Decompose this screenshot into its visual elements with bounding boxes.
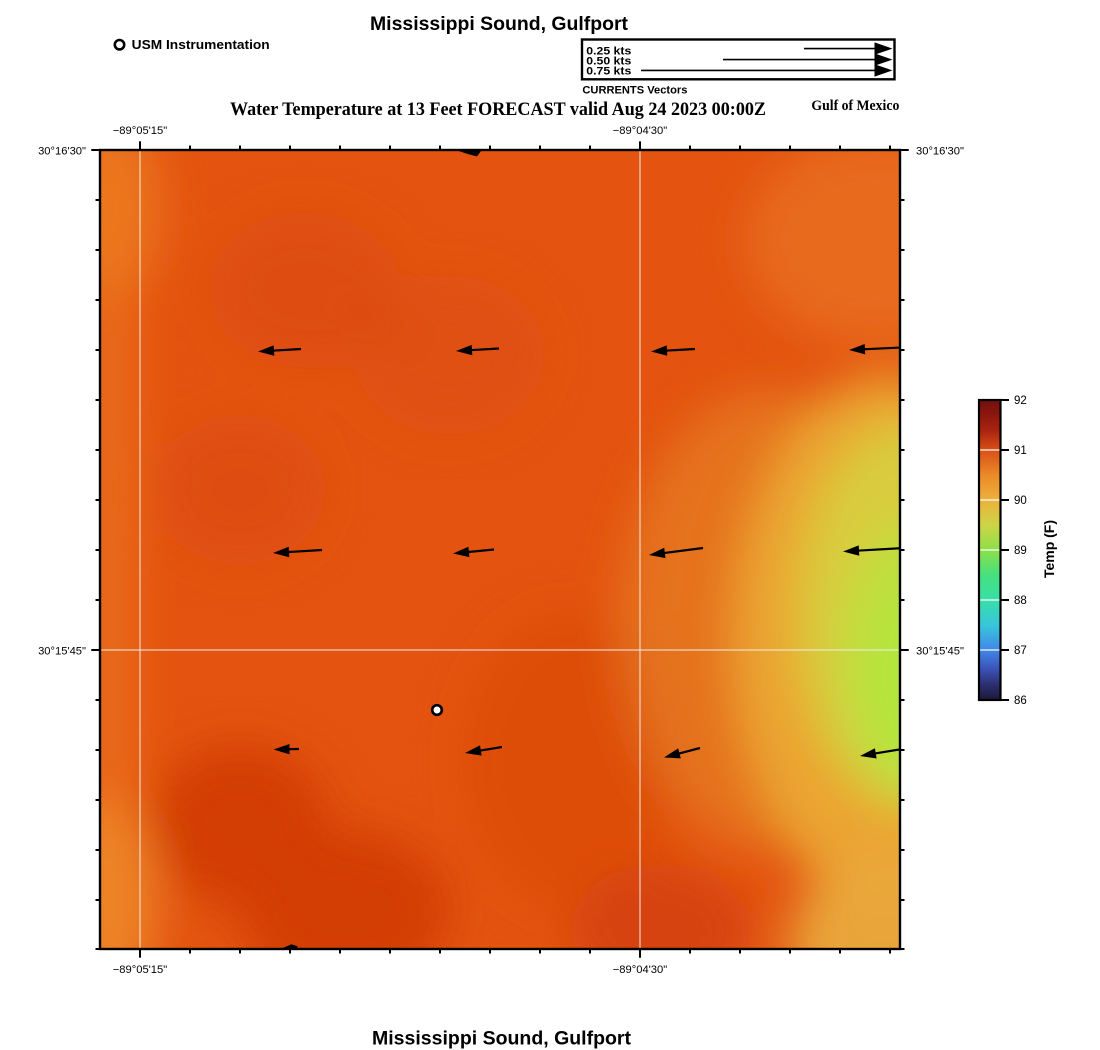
svg-text:30°16'30": 30°16'30" — [38, 145, 86, 157]
svg-text:91: 91 — [1014, 445, 1027, 457]
svg-text:90: 90 — [1014, 495, 1027, 507]
svg-text:86: 86 — [1014, 695, 1027, 707]
svg-text:30°15'45": 30°15'45" — [38, 645, 86, 657]
svg-text:−89°04'30": −89°04'30" — [613, 125, 667, 137]
svg-text:89: 89 — [1014, 545, 1027, 557]
svg-text:Water Temperature at 13 Feet F: Water Temperature at 13 Feet FORECAST va… — [230, 100, 766, 120]
svg-text:92: 92 — [1014, 395, 1027, 407]
svg-text:30°15'45": 30°15'45" — [916, 645, 964, 657]
svg-text:Mississippi Sound, Gulfport: Mississippi Sound, Gulfport — [370, 13, 629, 35]
svg-text:CURRENTS Vectors: CURRENTS Vectors — [582, 85, 687, 97]
svg-text:Mississippi Sound, Gulfport: Mississippi Sound, Gulfport — [372, 1028, 632, 1050]
svg-text:30°16'30": 30°16'30" — [916, 145, 964, 157]
svg-text:−89°05'15": −89°05'15" — [113, 964, 167, 976]
svg-text:87: 87 — [1014, 645, 1027, 657]
svg-text:−89°05'15": −89°05'15" — [113, 125, 167, 137]
svg-text:USM Instrumentation: USM Instrumentation — [132, 37, 270, 52]
svg-text:Temp (F): Temp (F) — [1041, 520, 1057, 578]
svg-text:88: 88 — [1014, 595, 1027, 607]
svg-text:Gulf of Mexico: Gulf of Mexico — [811, 98, 899, 114]
svg-text:0.75 kts: 0.75 kts — [586, 66, 631, 78]
svg-text:−89°04'30": −89°04'30" — [613, 964, 667, 976]
